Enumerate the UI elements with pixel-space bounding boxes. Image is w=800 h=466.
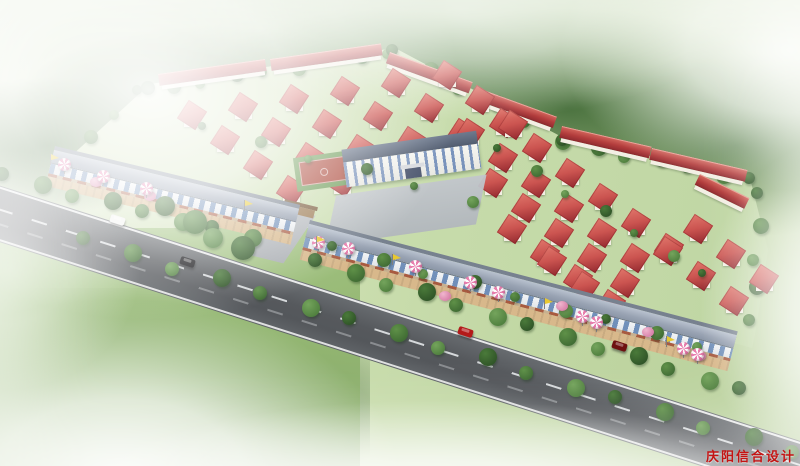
- watermark-text: 庆阳信合设计: [706, 446, 796, 465]
- white-vignette: [0, 0, 800, 466]
- aerial-rendering-scene: 庆阳信合设计: [0, 0, 800, 466]
